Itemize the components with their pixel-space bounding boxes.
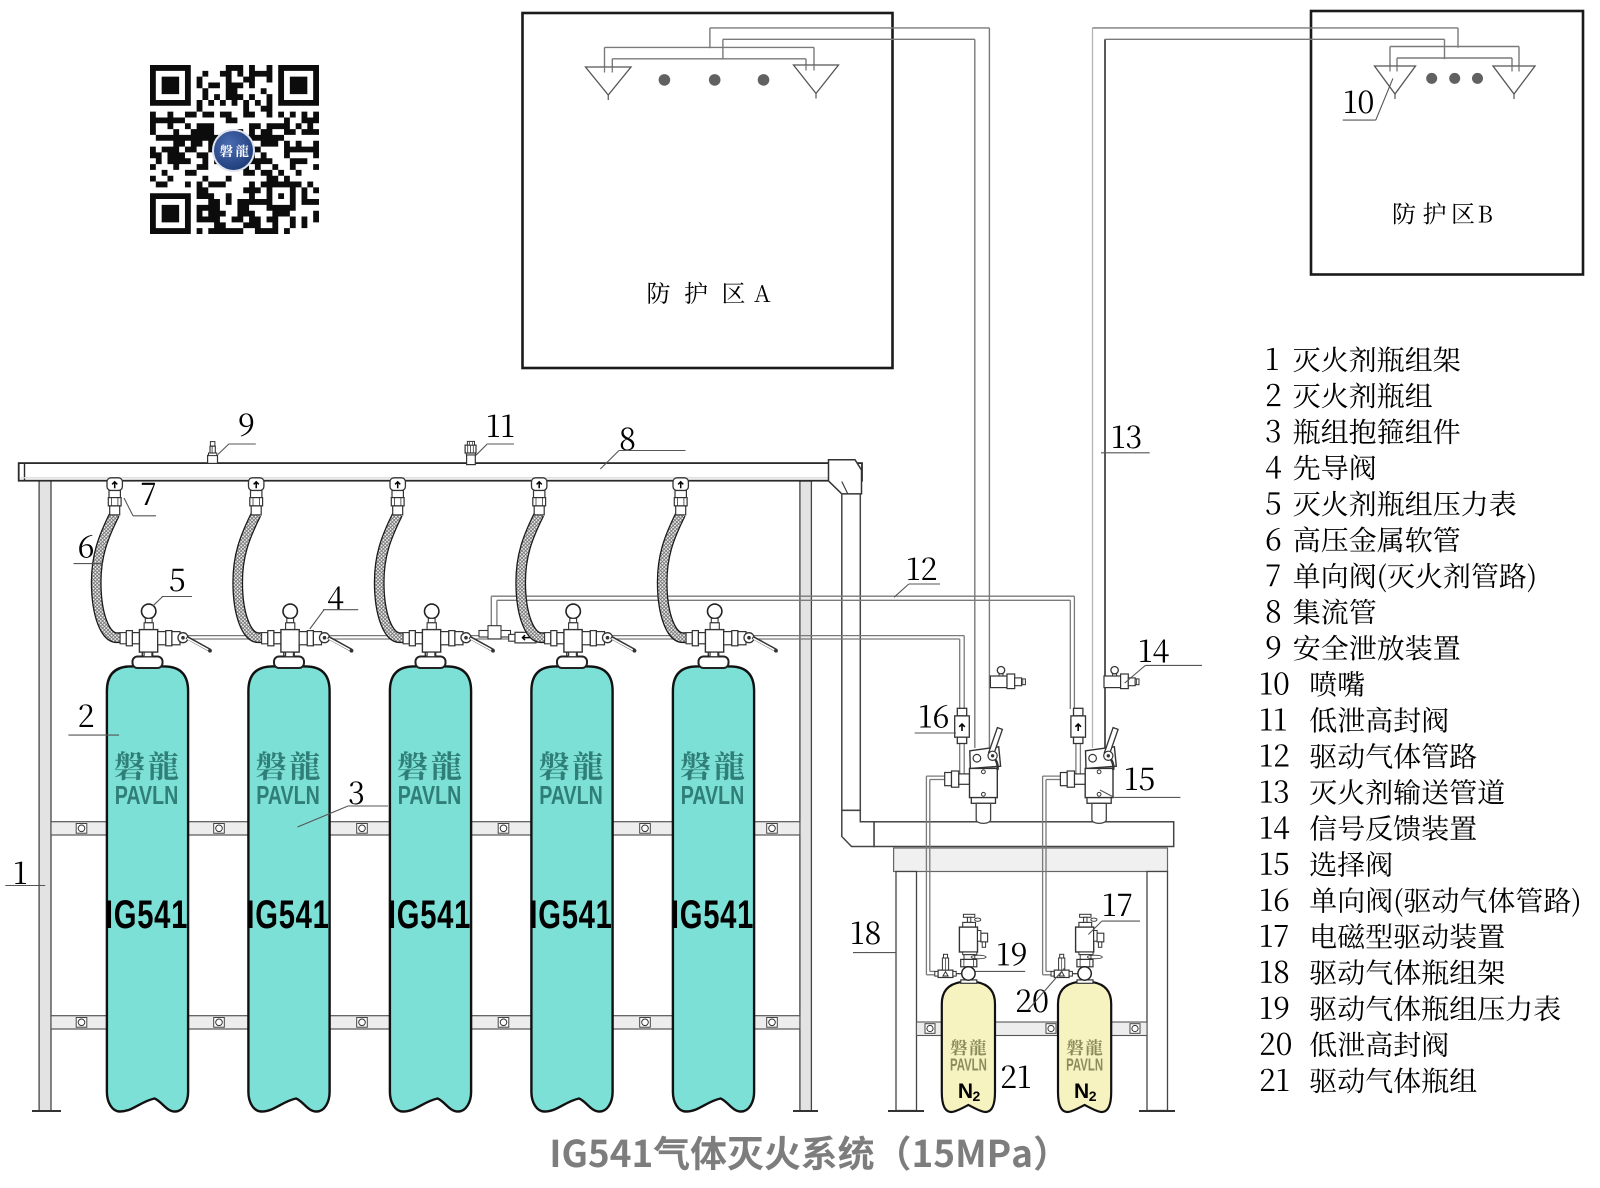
svg-text:PAVLN: PAVLN: [115, 780, 179, 809]
svg-text:IG541: IG541: [671, 892, 754, 937]
svg-text:IG541: IG541: [388, 892, 471, 937]
svg-text:IG541: IG541: [246, 892, 329, 937]
svg-text:2: 2: [1089, 1088, 1097, 1104]
svg-text:PAVLN: PAVLN: [950, 1055, 987, 1075]
svg-text:N: N: [958, 1080, 973, 1103]
svg-text:IG541: IG541: [105, 892, 188, 937]
svg-text:PAVLN: PAVLN: [1066, 1055, 1103, 1075]
svg-text:2: 2: [973, 1088, 981, 1104]
svg-text:PAVLN: PAVLN: [681, 780, 745, 809]
svg-text:IG541: IG541: [529, 892, 612, 937]
svg-text:PAVLN: PAVLN: [398, 780, 462, 809]
svg-text:N: N: [1074, 1080, 1089, 1103]
svg-text:PAVLN: PAVLN: [539, 780, 603, 809]
svg-text:PAVLN: PAVLN: [256, 780, 320, 809]
